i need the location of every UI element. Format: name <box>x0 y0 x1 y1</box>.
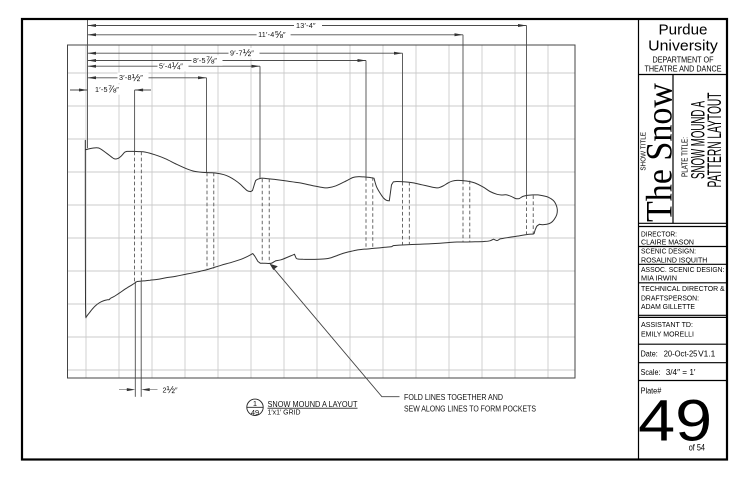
svg-text:5′-4¼″: 5′-4¼″ <box>159 60 183 72</box>
svg-text:MIA IRWIN: MIA IRWIN <box>641 274 677 283</box>
svg-text:PATTERN LAYTOUT: PATTERN LAYTOUT <box>705 92 726 187</box>
svg-text:Date:: Date: <box>641 348 658 358</box>
svg-text:20-Oct-25: 20-Oct-25 <box>664 348 698 358</box>
svg-text:49: 49 <box>251 408 259 417</box>
svg-text:EMILY MORELLI: EMILY MORELLI <box>641 329 694 338</box>
svg-text:CLAIRE MASON: CLAIRE MASON <box>641 238 694 247</box>
svg-text:ADAM GILLETTE: ADAM GILLETTE <box>641 302 695 311</box>
svg-text:University: University <box>648 38 718 55</box>
svg-text:13′-4″: 13′-4″ <box>296 21 316 30</box>
svg-text:V1.1: V1.1 <box>698 348 715 358</box>
svg-text:FOLD LINES TOGETHER AND: FOLD LINES TOGETHER AND <box>404 393 503 402</box>
svg-text:3/4″ = 1′: 3/4″ = 1′ <box>666 367 696 377</box>
svg-text:DRAFTSPERSON:: DRAFTSPERSON: <box>641 293 699 302</box>
svg-text:ASSISTANT TD:: ASSISTANT TD: <box>641 320 693 329</box>
svg-text:SEW ALONG LINES TO FORM POCKET: SEW ALONG LINES TO FORM POCKETS <box>404 404 536 413</box>
svg-text:1: 1 <box>253 399 257 408</box>
svg-text:Scale:: Scale: <box>641 367 661 377</box>
svg-text:The Snow: The Snow <box>640 83 681 222</box>
svg-text:ROSALIND ISQUITH: ROSALIND ISQUITH <box>641 255 707 264</box>
svg-text:Purdue: Purdue <box>659 21 708 38</box>
svg-text:TECHNICAL DIRECTOR &: TECHNICAL DIRECTOR & <box>641 284 725 293</box>
svg-text:of 54: of 54 <box>689 442 705 452</box>
svg-text:1′x1′ GRID: 1′x1′ GRID <box>268 408 301 417</box>
svg-text:THEATRE AND DANCE: THEATRE AND DANCE <box>644 63 721 73</box>
